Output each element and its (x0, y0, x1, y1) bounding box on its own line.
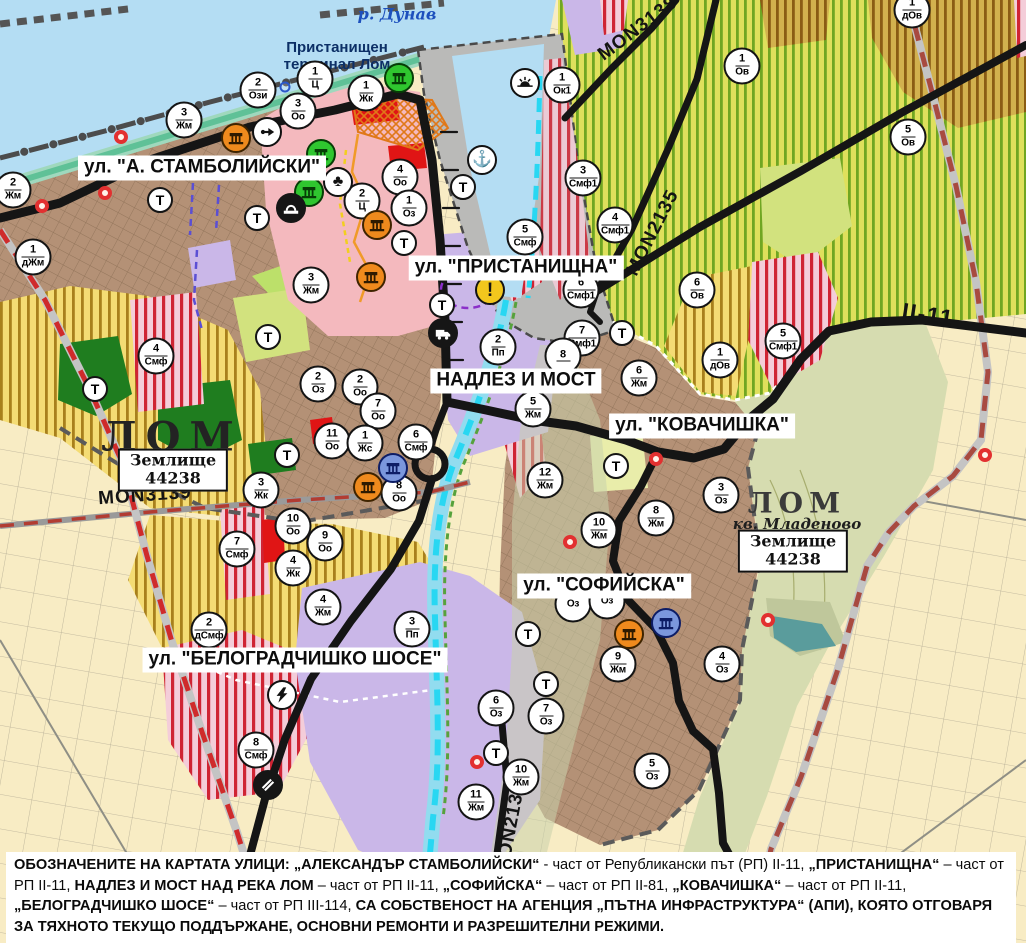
note-bold-segment: ОБОЗНАЧЕНИТЕ НА КАРТАТА УЛИЦИ: „АЛЕКСАНД… (14, 857, 539, 873)
transport-area-marker: Т (515, 621, 541, 647)
note-text-segment: – част от РП II-11, (314, 878, 443, 894)
zone-code-marker: 12Жм (527, 462, 564, 499)
zone-code-marker: 1дОв (894, 0, 931, 29)
map-annotations: 2Ози1Ц1Жк3Оо3Жм2Жм1дЖм4Оо2Ц1Оз3Жм1Ок13См… (0, 0, 1026, 943)
zone-code-marker: 6Смф (398, 424, 435, 461)
transport-area-marker: Т (603, 453, 629, 479)
land-unit-box: Землище44238 (118, 449, 228, 492)
zone-code-marker: 1Ц (297, 61, 334, 98)
zone-code-marker: 5Смф (507, 219, 544, 256)
port-anchor-icon: ⚓ (467, 145, 497, 175)
zone-code-marker: 8Жм (638, 500, 675, 537)
memorial-monument-icon (651, 608, 681, 638)
road-number-label: II-11 (900, 298, 956, 333)
single-cultural-monument-icon (356, 262, 386, 292)
single-cultural-monument-icon (221, 123, 251, 153)
land-unit-box: Землище44238 (738, 530, 848, 573)
street-label: ул. "СОФИЙСКА" (517, 574, 691, 599)
note-text-segment: - част от Републикански път (РП) II-11, (539, 857, 808, 873)
red-ring-point (114, 130, 128, 144)
tunnel-icon (276, 193, 306, 223)
zone-code-marker: 6Оз (478, 690, 515, 727)
zone-code-marker: 3Пп (394, 611, 431, 648)
zone-code-marker: 3Оз (703, 477, 740, 514)
zone-code-marker: 1Ок1 (544, 67, 581, 104)
zone-code-marker: 3Жм (166, 102, 203, 139)
note-text-segment: – част от РП III-114, (214, 898, 355, 914)
power-substation-icon (267, 680, 297, 710)
zone-code-marker: 9Оо (307, 525, 344, 562)
zone-code-marker: 11Оо (314, 423, 351, 460)
zone-code-marker: 6Ов (679, 272, 716, 309)
transport-area-marker: Т (274, 442, 300, 468)
red-ring-point (35, 199, 49, 213)
zone-code-marker: 2Ози (240, 72, 277, 109)
danube-river-label: р. Дунав (358, 5, 437, 24)
note-bold-segment: „БЕЛОГРАДЧИШКО ШОСЕ“ (14, 898, 214, 914)
waterfront-leisure-icon (510, 68, 540, 98)
zone-code-marker: 1Жс (347, 425, 384, 462)
note-bold-segment: „ПРИСТАНИЩНА“ (808, 857, 939, 873)
single-cultural-monument-icon (362, 210, 392, 240)
zone-code-marker: 4Оз (704, 646, 741, 683)
ownership-note: ОБОЗНАЧЕНИТЕ НА КАРТАТА УЛИЦИ: „АЛЕКСАНД… (6, 852, 1016, 943)
red-ring-point (98, 186, 112, 200)
red-ring-point (563, 535, 577, 549)
zone-code-marker: 2дСмф (191, 612, 228, 649)
street-label: ул. "КОВАЧИШКА" (609, 414, 795, 439)
zoning-map: 2Ози1Ц1Жк3Оо3Жм2Жм1дЖм4Оо2Ц1Оз3Жм1Ок13См… (0, 0, 1026, 943)
transport-area-marker: Т (82, 376, 108, 402)
zone-code-marker: 10Жм (581, 512, 618, 549)
transport-area-marker: Т (483, 740, 509, 766)
zone-code-marker: 1Оз (391, 190, 428, 227)
road-number-label: MON3138 (594, 0, 682, 66)
note-bold-segment: НАДЛЕЗ И МОСТ НАД РЕКА ЛОМ (75, 878, 314, 894)
transport-area-marker: Т (533, 671, 559, 697)
street-label: ул. "ПРИСТАНИЩНА" (409, 256, 624, 281)
note-text-segment: – част от РП II-11, (781, 878, 906, 894)
street-label: НАДЛЕЗ И МОСТ (430, 369, 601, 394)
transport-area-marker: Т (147, 187, 173, 213)
public-services-icon: ♣ (323, 167, 353, 197)
zone-code-marker: 5Оз (634, 753, 671, 790)
zone-code-marker: 3Жк (243, 472, 280, 509)
note-text-segment: – част от РП II-81, (542, 878, 672, 894)
red-ring-point (978, 448, 992, 462)
freight-terminal-icon (428, 318, 458, 348)
red-ring-point (649, 452, 663, 466)
red-ring-point (761, 613, 775, 627)
zone-code-marker: 7Смф (219, 531, 256, 568)
transport-area-marker: Т (429, 292, 455, 318)
zone-code-marker: 1Жк (348, 75, 385, 112)
one-way-route-icon (252, 117, 282, 147)
zone-code-marker: 5Жм (515, 391, 552, 428)
zone-code-marker: 3Смф1 (565, 160, 602, 197)
zone-code-marker: 1дЖм (15, 239, 52, 276)
street-label: ул. "БЕЛОГРАДЧИШКО ШОСЕ" (143, 648, 448, 673)
transport-area-marker: Т (609, 320, 635, 346)
zone-code-marker: 4Смф1 (597, 207, 634, 244)
single-cultural-monument-icon (614, 619, 644, 649)
group-cultural-monument-icon (384, 63, 414, 93)
zone-code-marker: 5Ов (890, 119, 927, 156)
single-cultural-monument-icon (353, 472, 383, 502)
zone-code-marker: 2Оз (300, 366, 337, 403)
zone-code-marker: 9Жм (600, 646, 637, 683)
zone-code-marker: 6Жм (621, 360, 658, 397)
zone-code-marker: 2Пп (480, 329, 517, 366)
street-label: ул. "А. СТАМБОЛИЙСКИ" (78, 156, 326, 181)
zone-code-marker: 4Смф (138, 338, 175, 375)
zone-code-marker: 8Смф (238, 732, 275, 769)
note-bold-segment: „СОФИЙСКА“ (443, 878, 543, 894)
zone-code-marker: 7Оз (528, 698, 565, 735)
zone-code-marker: 4Жк (275, 550, 312, 587)
note-bold-segment: „КОВАЧИШКА“ (672, 878, 781, 894)
red-ring-point (470, 755, 484, 769)
transport-area-marker: Т (391, 230, 417, 256)
zone-code-marker: 5Смф1 (765, 323, 802, 360)
zone-code-marker: 10Жм (503, 759, 540, 796)
zone-code-marker: 3Оо (280, 93, 317, 130)
zone-code-marker: 4Жм (305, 589, 342, 626)
blue-ring-point (280, 82, 291, 93)
railway-crossing-icon (253, 770, 283, 800)
memorial-monument-icon (378, 453, 408, 483)
zone-code-marker: 1дОв (702, 342, 739, 379)
zone-code-marker: 2Жм (0, 172, 32, 209)
zone-code-marker: 1Ов (724, 48, 761, 85)
zone-code-marker: 11Жм (458, 784, 495, 821)
transport-area-marker: Т (244, 205, 270, 231)
zone-code-marker: 3Жм (293, 267, 330, 304)
transport-area-marker: Т (255, 324, 281, 350)
transport-area-marker: Т (450, 174, 476, 200)
